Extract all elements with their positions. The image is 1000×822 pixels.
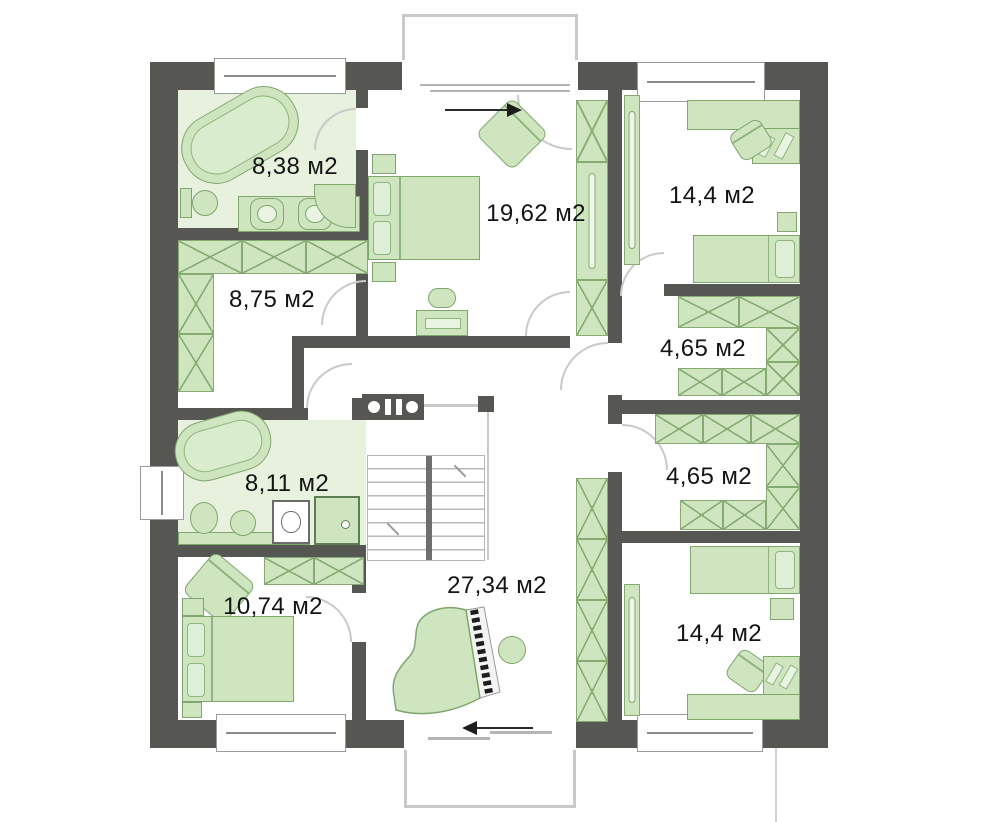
wardrobe-cell: [678, 368, 722, 396]
door-arc-wardrobe-left: [321, 280, 366, 325]
wall-bath-top-right-stub: [356, 90, 368, 108]
nightstand: [777, 212, 797, 232]
wardrobe-cell: [576, 600, 608, 661]
wardrobe-cell: [178, 334, 214, 392]
wall-outer-right: [800, 62, 828, 748]
desk-bottom-right: [687, 694, 800, 720]
nightstand: [182, 702, 202, 718]
room-label-closet-right-upper: 4,65 м2: [660, 335, 746, 363]
toilet-mid-bowl: [190, 502, 218, 534]
window-top-left: [214, 58, 346, 94]
wardrobe-slider: [624, 584, 640, 716]
wardrobe-cell: [723, 500, 766, 530]
nightstand: [770, 598, 794, 620]
window-left-bathroom: [140, 466, 184, 520]
balcony-exit-arrow-top: [507, 103, 522, 117]
wall-bedroom-center-bottom: [292, 336, 570, 348]
wardrobe-cell: [576, 661, 608, 722]
single-bed-top-right: [693, 235, 800, 283]
desk-bottom-right-return: [763, 656, 800, 696]
nightstand: [182, 598, 204, 616]
balcony-exit-line-top: [445, 109, 507, 111]
room-label-bathroom-mid-left: 8,11 м2: [245, 470, 329, 498]
wall-bath-mid-bottom: [178, 545, 366, 557]
wall-closet-upper-top: [664, 284, 800, 296]
threshold-bottom-1: [428, 737, 490, 740]
desk-center: [416, 310, 468, 336]
roof-outline-line: [775, 748, 777, 822]
wardrobe-cell: [242, 240, 306, 274]
sink-left: [250, 198, 284, 230]
double-bed-top: [368, 176, 480, 260]
shower-mid: [314, 496, 360, 545]
wardrobe-cell: [655, 414, 703, 444]
balcony-exit-line-bottom: [477, 727, 533, 729]
nightstand: [372, 154, 396, 174]
wardrobe-cell: [306, 240, 368, 274]
wardrobe-cell: [314, 557, 364, 585]
threshold-bottom-2: [490, 731, 552, 734]
stair-railing-top: [424, 404, 480, 407]
threshold-top-2: [430, 90, 570, 92]
piano-stool: [498, 636, 526, 664]
wall-hall-right-lower: [608, 472, 622, 720]
room-label-bedroom-bottom-right: 14,4 м2: [676, 620, 762, 648]
wall-hall-right-upper: [608, 90, 622, 343]
wardrobe-cell: [576, 478, 608, 539]
wall-bedroom-bl-right-lower: [352, 642, 366, 720]
room-label-hall-center: 27,34 м2: [447, 572, 547, 600]
threshold-top-1: [420, 84, 570, 86]
staircase: [367, 455, 485, 561]
wardrobe-cell: [178, 274, 214, 334]
wall-closet-lower-bottom: [608, 531, 800, 543]
room-label-bathroom-top-left: 8,38 м2: [252, 153, 338, 181]
wardrobe-slider: [624, 95, 640, 265]
room-label-bedroom-top-center: 19,62 м2: [486, 200, 586, 228]
wall-closet-divider: [608, 400, 800, 414]
desk-chair-center: [428, 288, 456, 308]
wardrobe-cell: [766, 362, 800, 396]
chimney-flue-block: [362, 394, 424, 420]
balcony-opening-bottom: [404, 718, 576, 750]
double-bed-bottom: [182, 616, 294, 702]
wardrobe-cell: [766, 487, 800, 530]
door-arc-bedroom-center: [525, 291, 570, 336]
wardrobe-cell: [766, 328, 800, 362]
wardrobe-cell: [576, 100, 608, 162]
bidet-bowl: [230, 510, 256, 536]
wardrobe-cell: [766, 444, 800, 487]
room-label-bedroom-top-right: 14,4 м2: [669, 182, 755, 210]
wardrobe-cell: [264, 557, 314, 585]
wardrobe-cell: [703, 414, 751, 444]
grand-piano: [384, 606, 506, 716]
stair-railing-post: [478, 396, 494, 412]
wardrobe-cell: [576, 539, 608, 600]
wardrobe-cell: [178, 240, 242, 274]
wall-hall-right-lower-stub: [608, 414, 622, 424]
wardrobe-cell: [678, 296, 739, 328]
washing-machine: [272, 500, 310, 544]
door-arc-bathroom-mid: [306, 363, 352, 408]
nightstand: [372, 262, 396, 282]
window-bottom-left: [216, 714, 346, 752]
wardrobe-cell: [680, 500, 723, 530]
floor-plan: 8,38 м2 8,75 м2 19,62 м2 14,4 м2 4,65 м2…: [0, 0, 1000, 822]
room-label-bedroom-bottom-left: 10,74 м2: [223, 593, 323, 621]
room-label-closet-right-lower: 4,65 м2: [666, 463, 752, 491]
wardrobe-cell: [739, 296, 800, 328]
window-top-right: [637, 62, 765, 102]
balcony-exit-arrow-bottom: [462, 721, 477, 735]
wardrobe-cell: [576, 280, 608, 336]
toilet-top-tank: [180, 188, 192, 218]
room-label-wardrobe-left: 8,75 м2: [229, 286, 315, 314]
door-arc-closet-upper: [560, 342, 608, 390]
balcony-opening-top: [402, 60, 578, 92]
toilet-top-bowl: [192, 190, 218, 216]
wardrobe-cell: [722, 368, 766, 396]
wall-outer-left: [150, 62, 178, 748]
wardrobe-cell: [751, 414, 800, 444]
single-bed-bottom-right: [690, 546, 800, 594]
stair-railing-side: [487, 412, 489, 560]
